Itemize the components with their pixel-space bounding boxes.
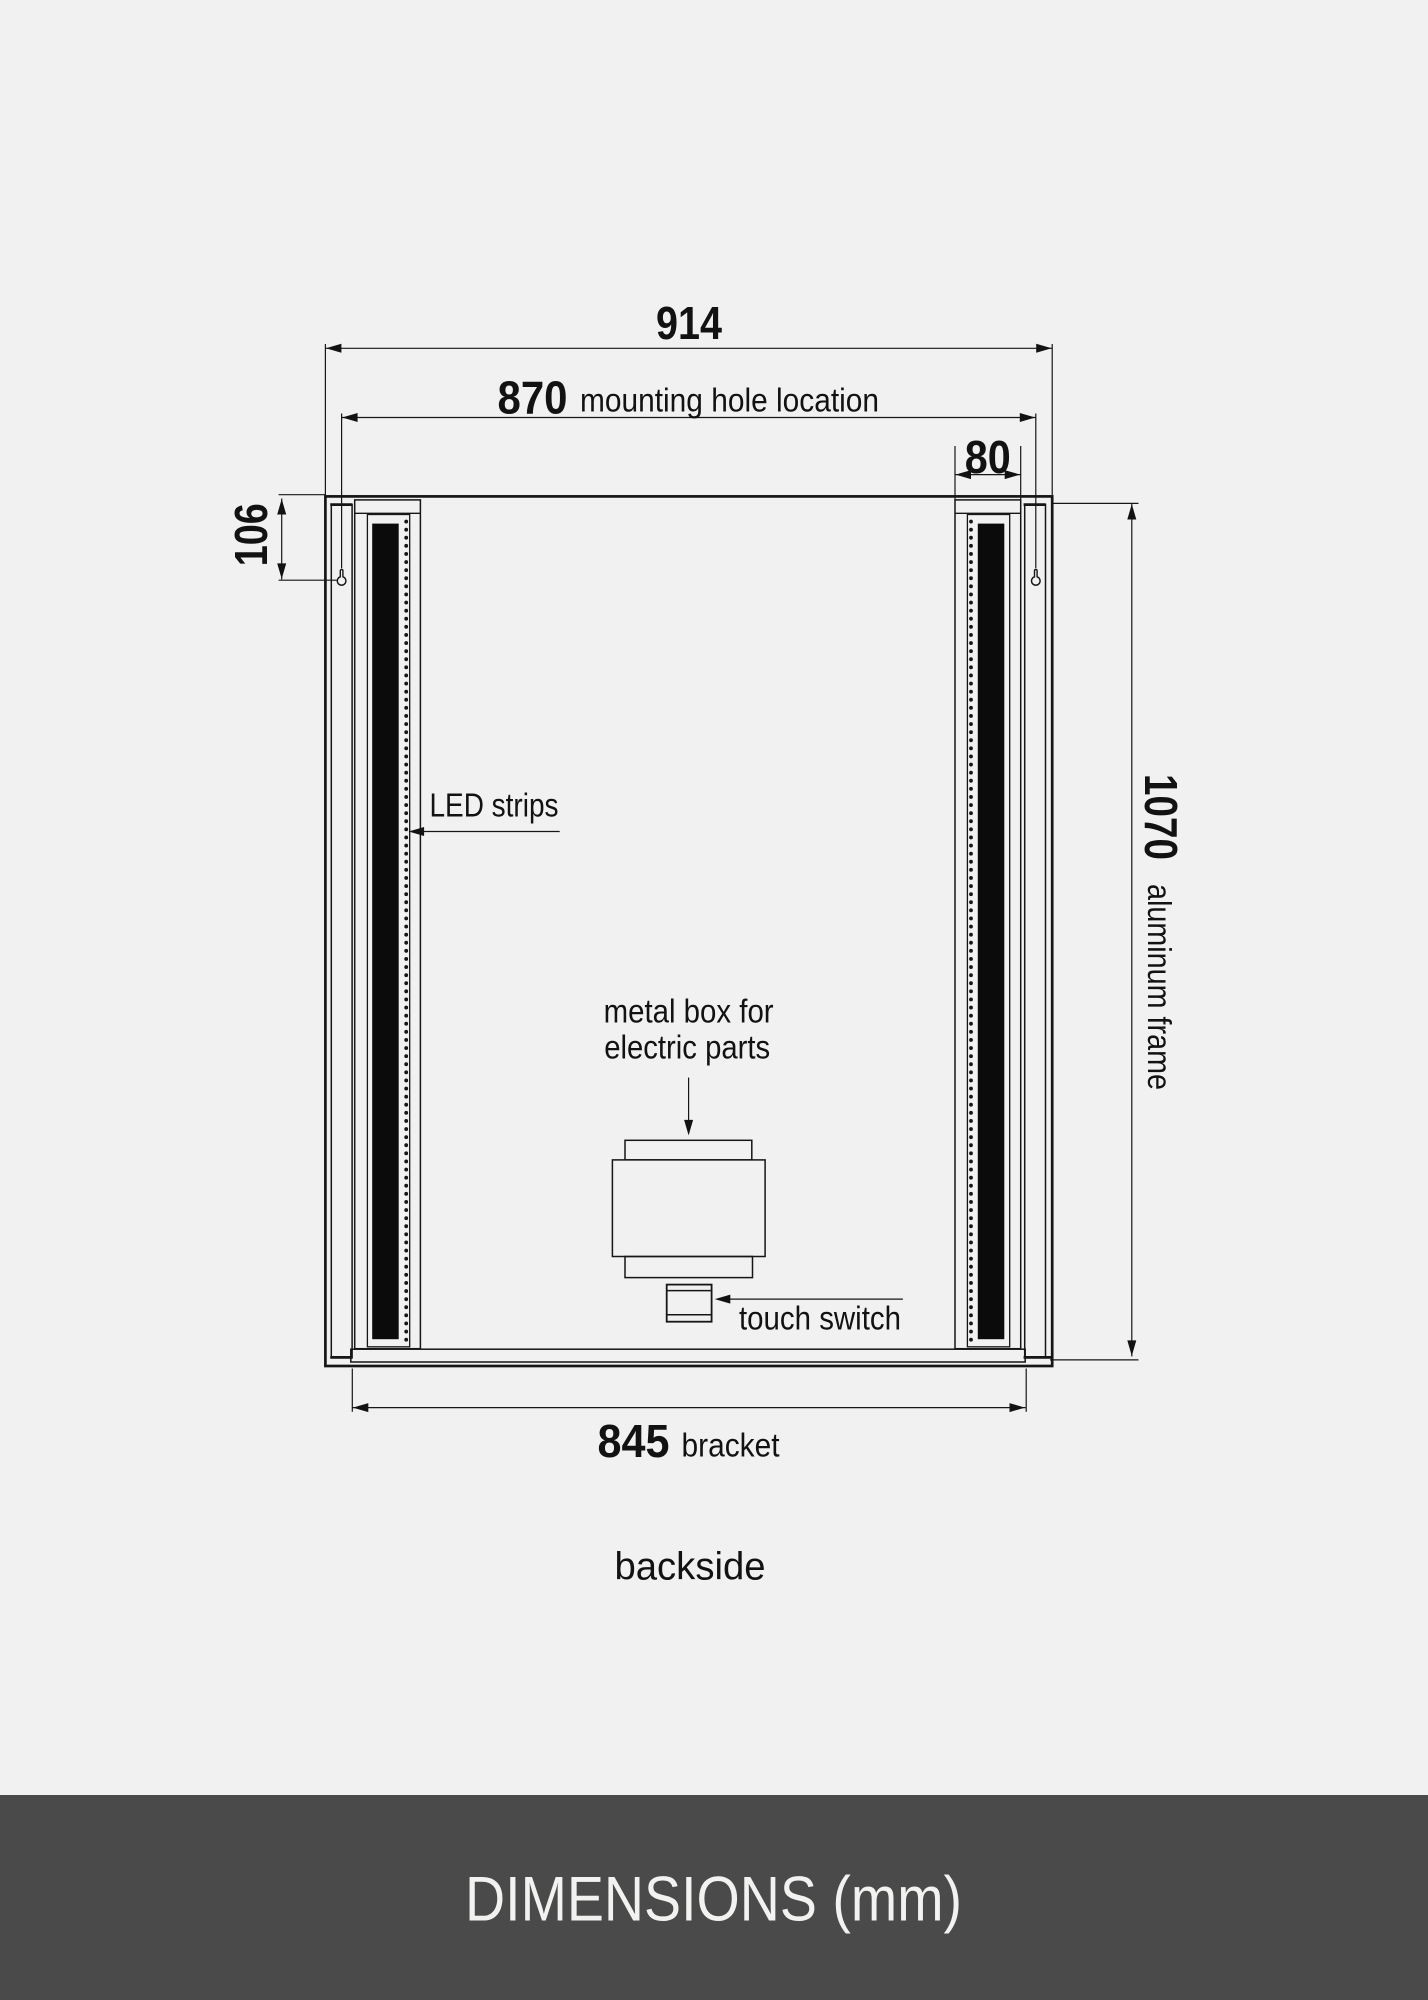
svg-text:914: 914 bbox=[656, 297, 722, 349]
svg-text:electric parts: electric parts bbox=[604, 1029, 770, 1066]
svg-text:80: 80 bbox=[965, 431, 1011, 483]
svg-text:mounting hole location: mounting hole location bbox=[580, 381, 879, 418]
svg-text:backside: backside bbox=[615, 1546, 766, 1589]
svg-text:touch switch: touch switch bbox=[739, 1300, 901, 1337]
svg-text:870: 870 bbox=[498, 372, 568, 424]
svg-text:metal box for: metal box for bbox=[604, 993, 774, 1030]
svg-text:DIMENSIONS (mm): DIMENSIONS (mm) bbox=[465, 1864, 962, 1934]
svg-text:106: 106 bbox=[225, 503, 277, 566]
svg-text:bracket: bracket bbox=[682, 1427, 780, 1464]
svg-text:1070: 1070 bbox=[1135, 774, 1187, 860]
svg-text:aluminum frame: aluminum frame bbox=[1141, 884, 1178, 1090]
svg-text:LED strips: LED strips bbox=[430, 787, 559, 824]
svg-text:845: 845 bbox=[598, 1415, 670, 1467]
